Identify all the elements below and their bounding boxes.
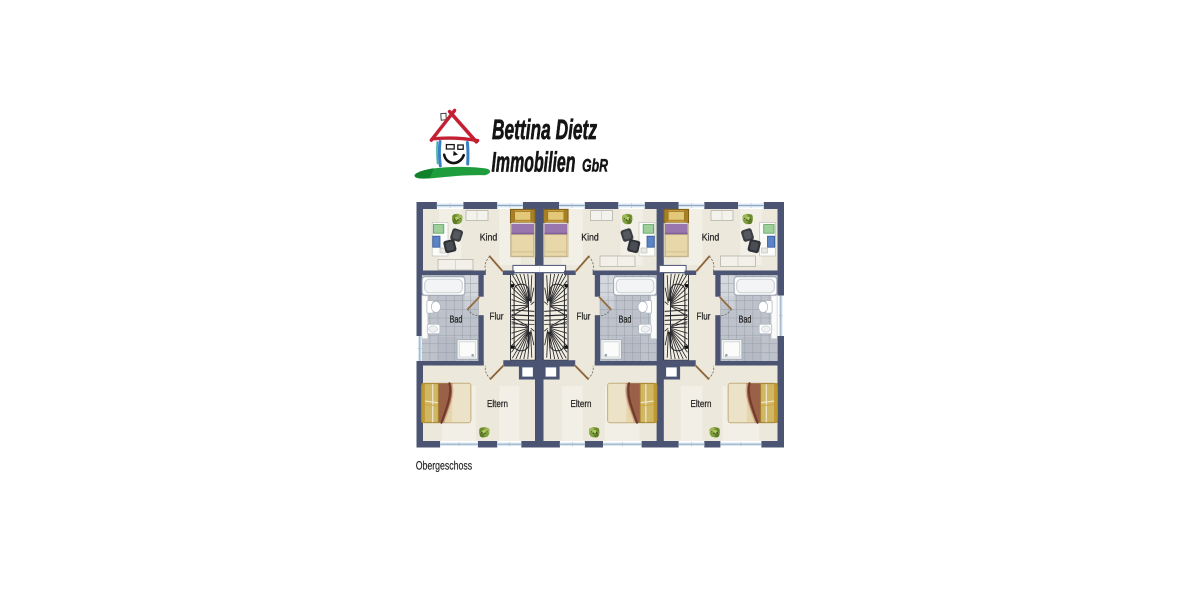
svg-text:GbR: GbR	[582, 156, 608, 176]
svg-text:Bad: Bad	[619, 315, 632, 326]
svg-text:Obergeschoss: Obergeschoss	[416, 459, 473, 473]
svg-text:Bad: Bad	[450, 315, 463, 326]
svg-text:Bettina Dietz: Bettina Dietz	[492, 114, 597, 145]
svg-text:Eltern: Eltern	[571, 399, 592, 410]
svg-text:Eltern: Eltern	[487, 399, 508, 410]
svg-text:Flur: Flur	[697, 312, 712, 323]
svg-text:Kind: Kind	[581, 233, 599, 244]
svg-text:Kind: Kind	[702, 233, 720, 244]
svg-text:Eltern: Eltern	[691, 399, 712, 410]
svg-text:Flur: Flur	[577, 312, 592, 323]
svg-text:Bad: Bad	[739, 315, 752, 326]
svg-text:Immobilien: Immobilien	[492, 147, 576, 178]
svg-text:Flur: Flur	[490, 312, 505, 323]
svg-text:Kind: Kind	[480, 233, 498, 244]
